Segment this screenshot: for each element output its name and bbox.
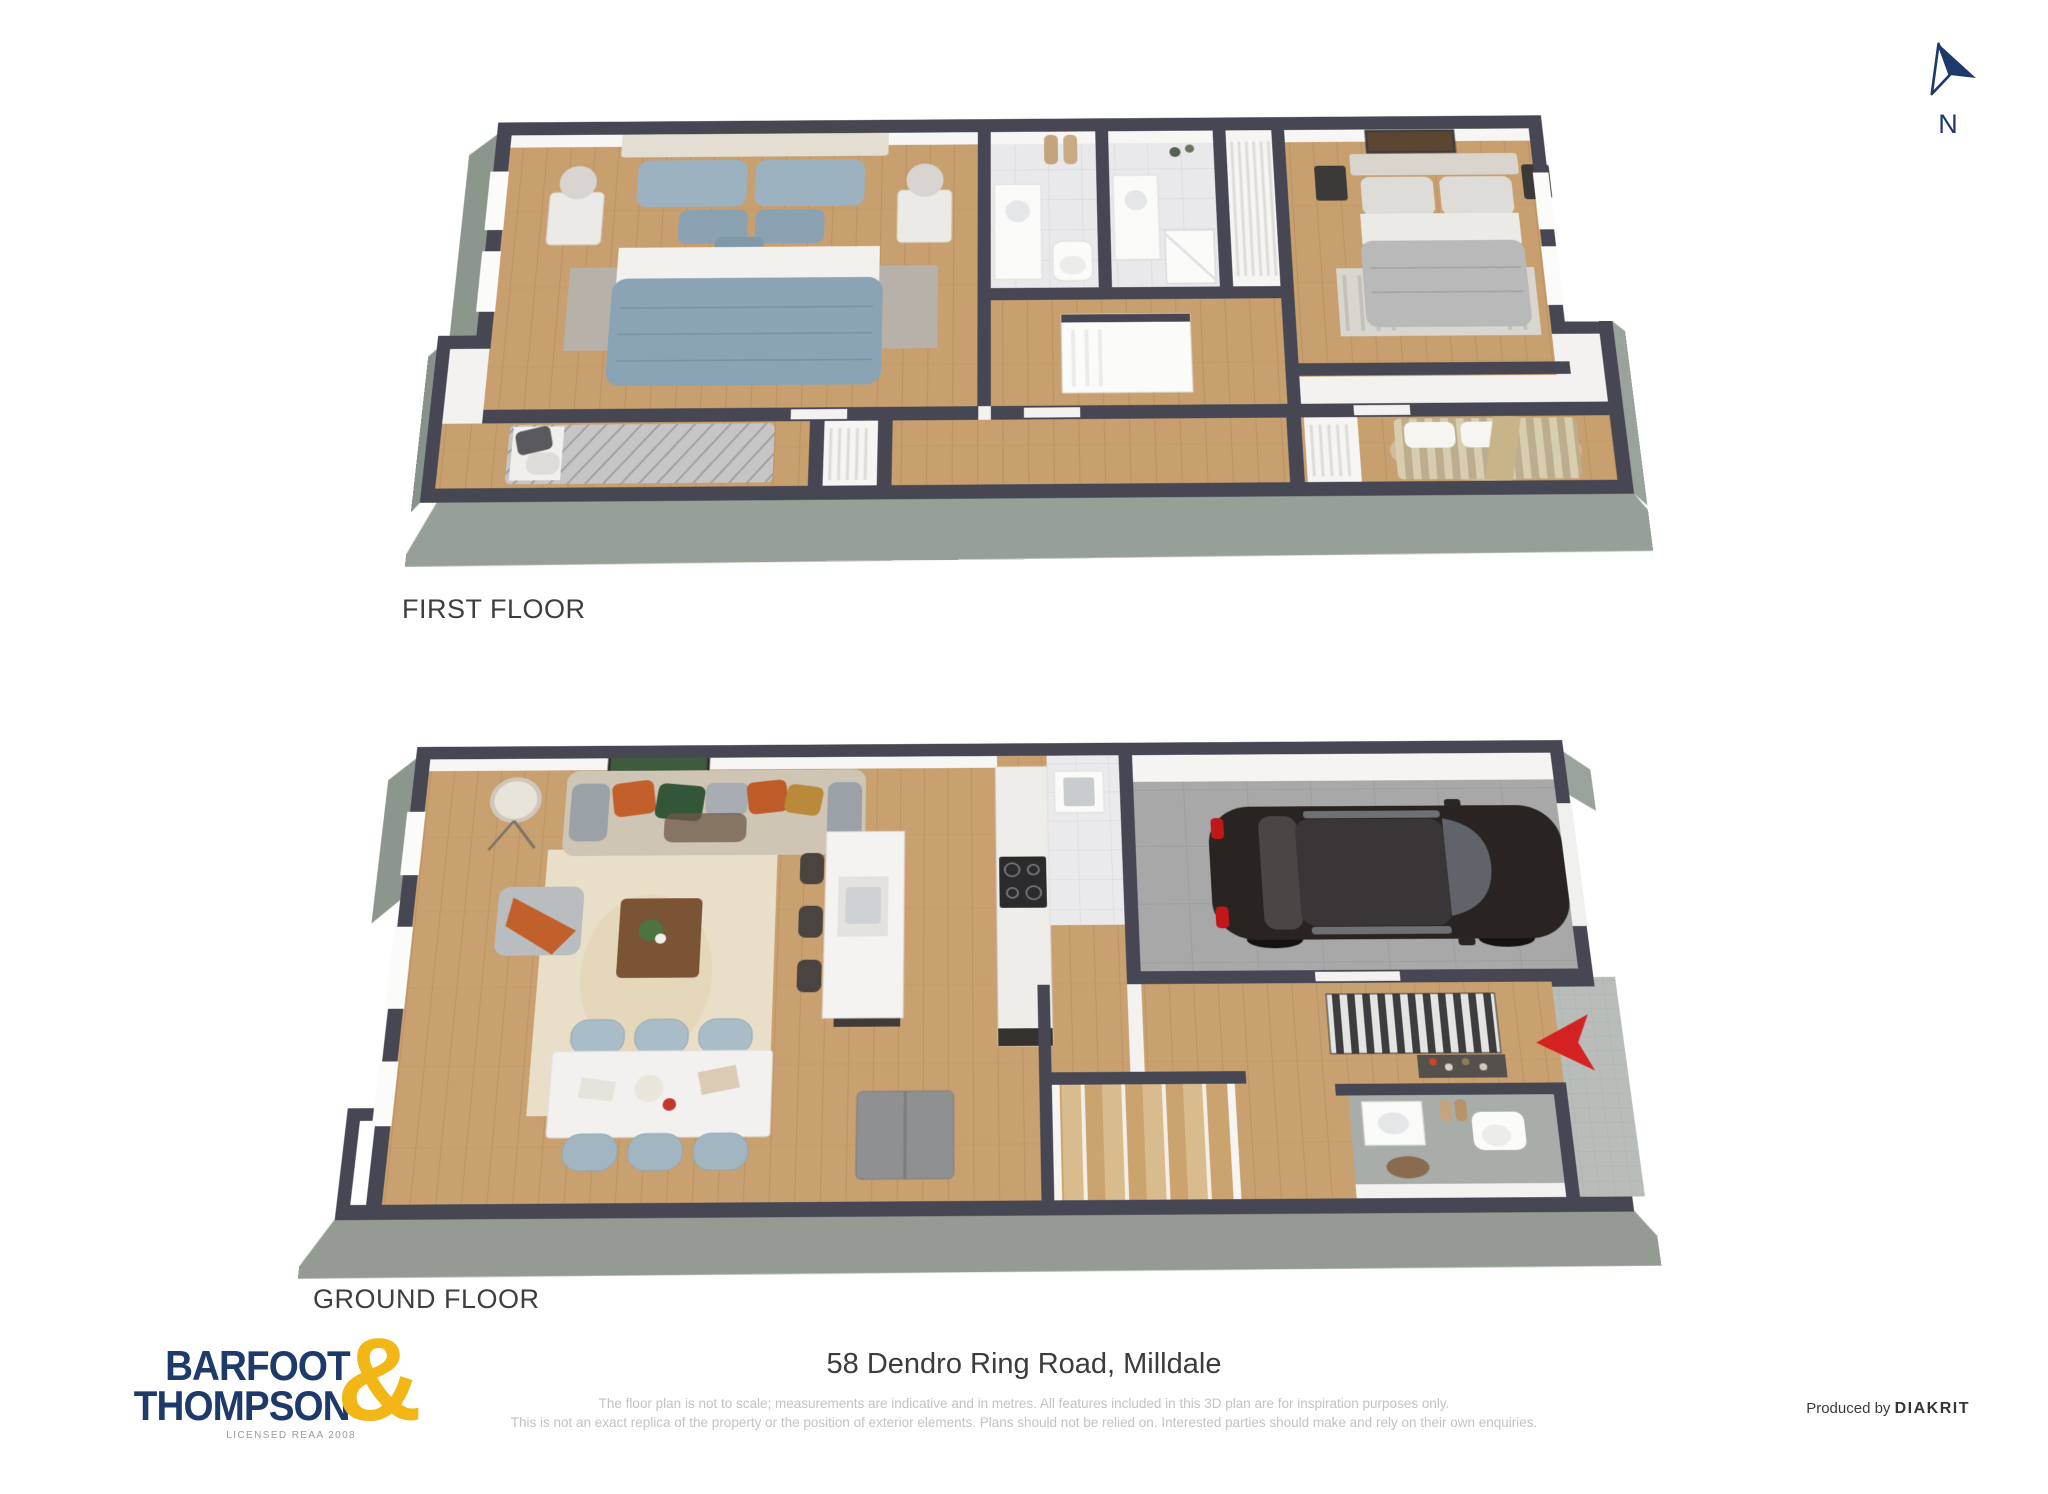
appliance-unit (856, 1091, 954, 1179)
ground-floor-label: GROUND FLOOR (313, 1284, 540, 1315)
hall-lower-floor (891, 418, 1290, 486)
coffee-table (616, 898, 703, 978)
stairs (1039, 1071, 1253, 1200)
first-floor-plan (404, 107, 1654, 570)
taillight (1210, 818, 1224, 839)
island-sink (845, 887, 881, 924)
cooktop (999, 856, 1047, 907)
wall-art (1366, 130, 1455, 152)
compass-north-label: N (1908, 109, 1988, 140)
property-address: 58 Dendro Ring Road, Milldale (0, 1348, 2048, 1381)
produced-by-label: Produced by (1806, 1400, 1890, 1417)
taillight (1215, 906, 1229, 928)
closet-lower (823, 421, 879, 486)
sofa (561, 769, 866, 856)
dining-set (543, 1019, 774, 1172)
bar-stool (800, 853, 825, 884)
laundry-sink (1063, 777, 1095, 806)
towel-1 (1044, 135, 1058, 165)
bedroom-3 (505, 423, 775, 484)
walk-in-closet (1225, 129, 1280, 286)
garage (1207, 798, 1576, 948)
bedroom-4 (1304, 412, 1586, 484)
ground-floor-plan (297, 732, 1662, 1281)
bar-stool (798, 906, 823, 938)
stairwell-void (1061, 314, 1193, 393)
compass: N (1908, 40, 1988, 140)
powder-room (1335, 1082, 1578, 1184)
first-floor-label: FIRST FLOOR (402, 594, 586, 625)
north-arrow-icon (1916, 40, 1980, 102)
disclaimer-line-2: This is not an exact replica of the prop… (0, 1413, 2048, 1432)
disclaimer-line-1: The floor plan is not to scale; measurem… (0, 1394, 2048, 1413)
entry-striped-rug (1326, 993, 1501, 1054)
produced-by: Produced by DIAKRIT (1806, 1400, 1970, 1418)
armchair (493, 886, 584, 955)
laundry (1054, 771, 1104, 813)
disclaimer-text: The floor plan is not to scale; measurem… (0, 1394, 2048, 1432)
bar-stool (796, 960, 821, 993)
towel (1439, 1099, 1453, 1121)
floor-plan-page: N (0, 0, 2048, 1494)
towel-2 (1063, 135, 1077, 165)
car (1207, 798, 1576, 948)
nightstand-dark-left (1314, 166, 1348, 201)
shoe-rack (1417, 1054, 1508, 1078)
producer-name: DIAKRIT (1895, 1400, 1970, 1417)
